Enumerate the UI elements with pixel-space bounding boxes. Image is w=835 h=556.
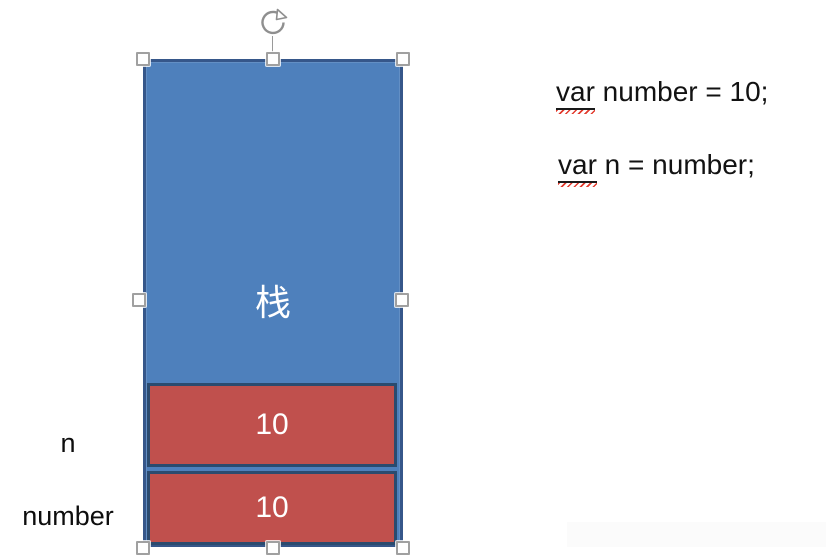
- code-line-2[interactable]: var n = number;: [558, 149, 755, 181]
- selection-handle-top-right[interactable]: [396, 52, 410, 66]
- code-keyword-var-2: var: [558, 149, 597, 183]
- slot-n-value: 10: [255, 408, 288, 442]
- selection-handle-bottom-middle[interactable]: [266, 541, 280, 555]
- selection-handle-bottom-left[interactable]: [136, 541, 150, 555]
- footer-strip: [567, 522, 826, 547]
- stack-slot-n[interactable]: 10: [147, 383, 397, 467]
- selection-handle-top-middle[interactable]: [266, 52, 280, 66]
- code-rest-2: n = number;: [597, 149, 755, 180]
- label-number[interactable]: number: [8, 501, 128, 532]
- code-line-1[interactable]: var number = 10;: [556, 76, 768, 108]
- selection-handle-top-left[interactable]: [136, 52, 150, 66]
- slot-number-value: 10: [255, 491, 288, 525]
- rotate-handle-icon[interactable]: [255, 8, 291, 42]
- selection-handle-middle-left[interactable]: [132, 293, 146, 307]
- code-rest-1: number = 10;: [595, 76, 769, 107]
- label-n[interactable]: n: [8, 428, 128, 459]
- slide-canvas: 栈 10 10 n number var number = 10; var n …: [0, 0, 835, 556]
- stack-slot-number[interactable]: 10: [147, 471, 397, 545]
- stack-shape-label: 栈: [146, 284, 400, 324]
- code-keyword-var-1: var: [556, 76, 595, 110]
- selection-handle-bottom-right[interactable]: [396, 541, 410, 555]
- selection-handle-middle-right[interactable]: [395, 293, 409, 307]
